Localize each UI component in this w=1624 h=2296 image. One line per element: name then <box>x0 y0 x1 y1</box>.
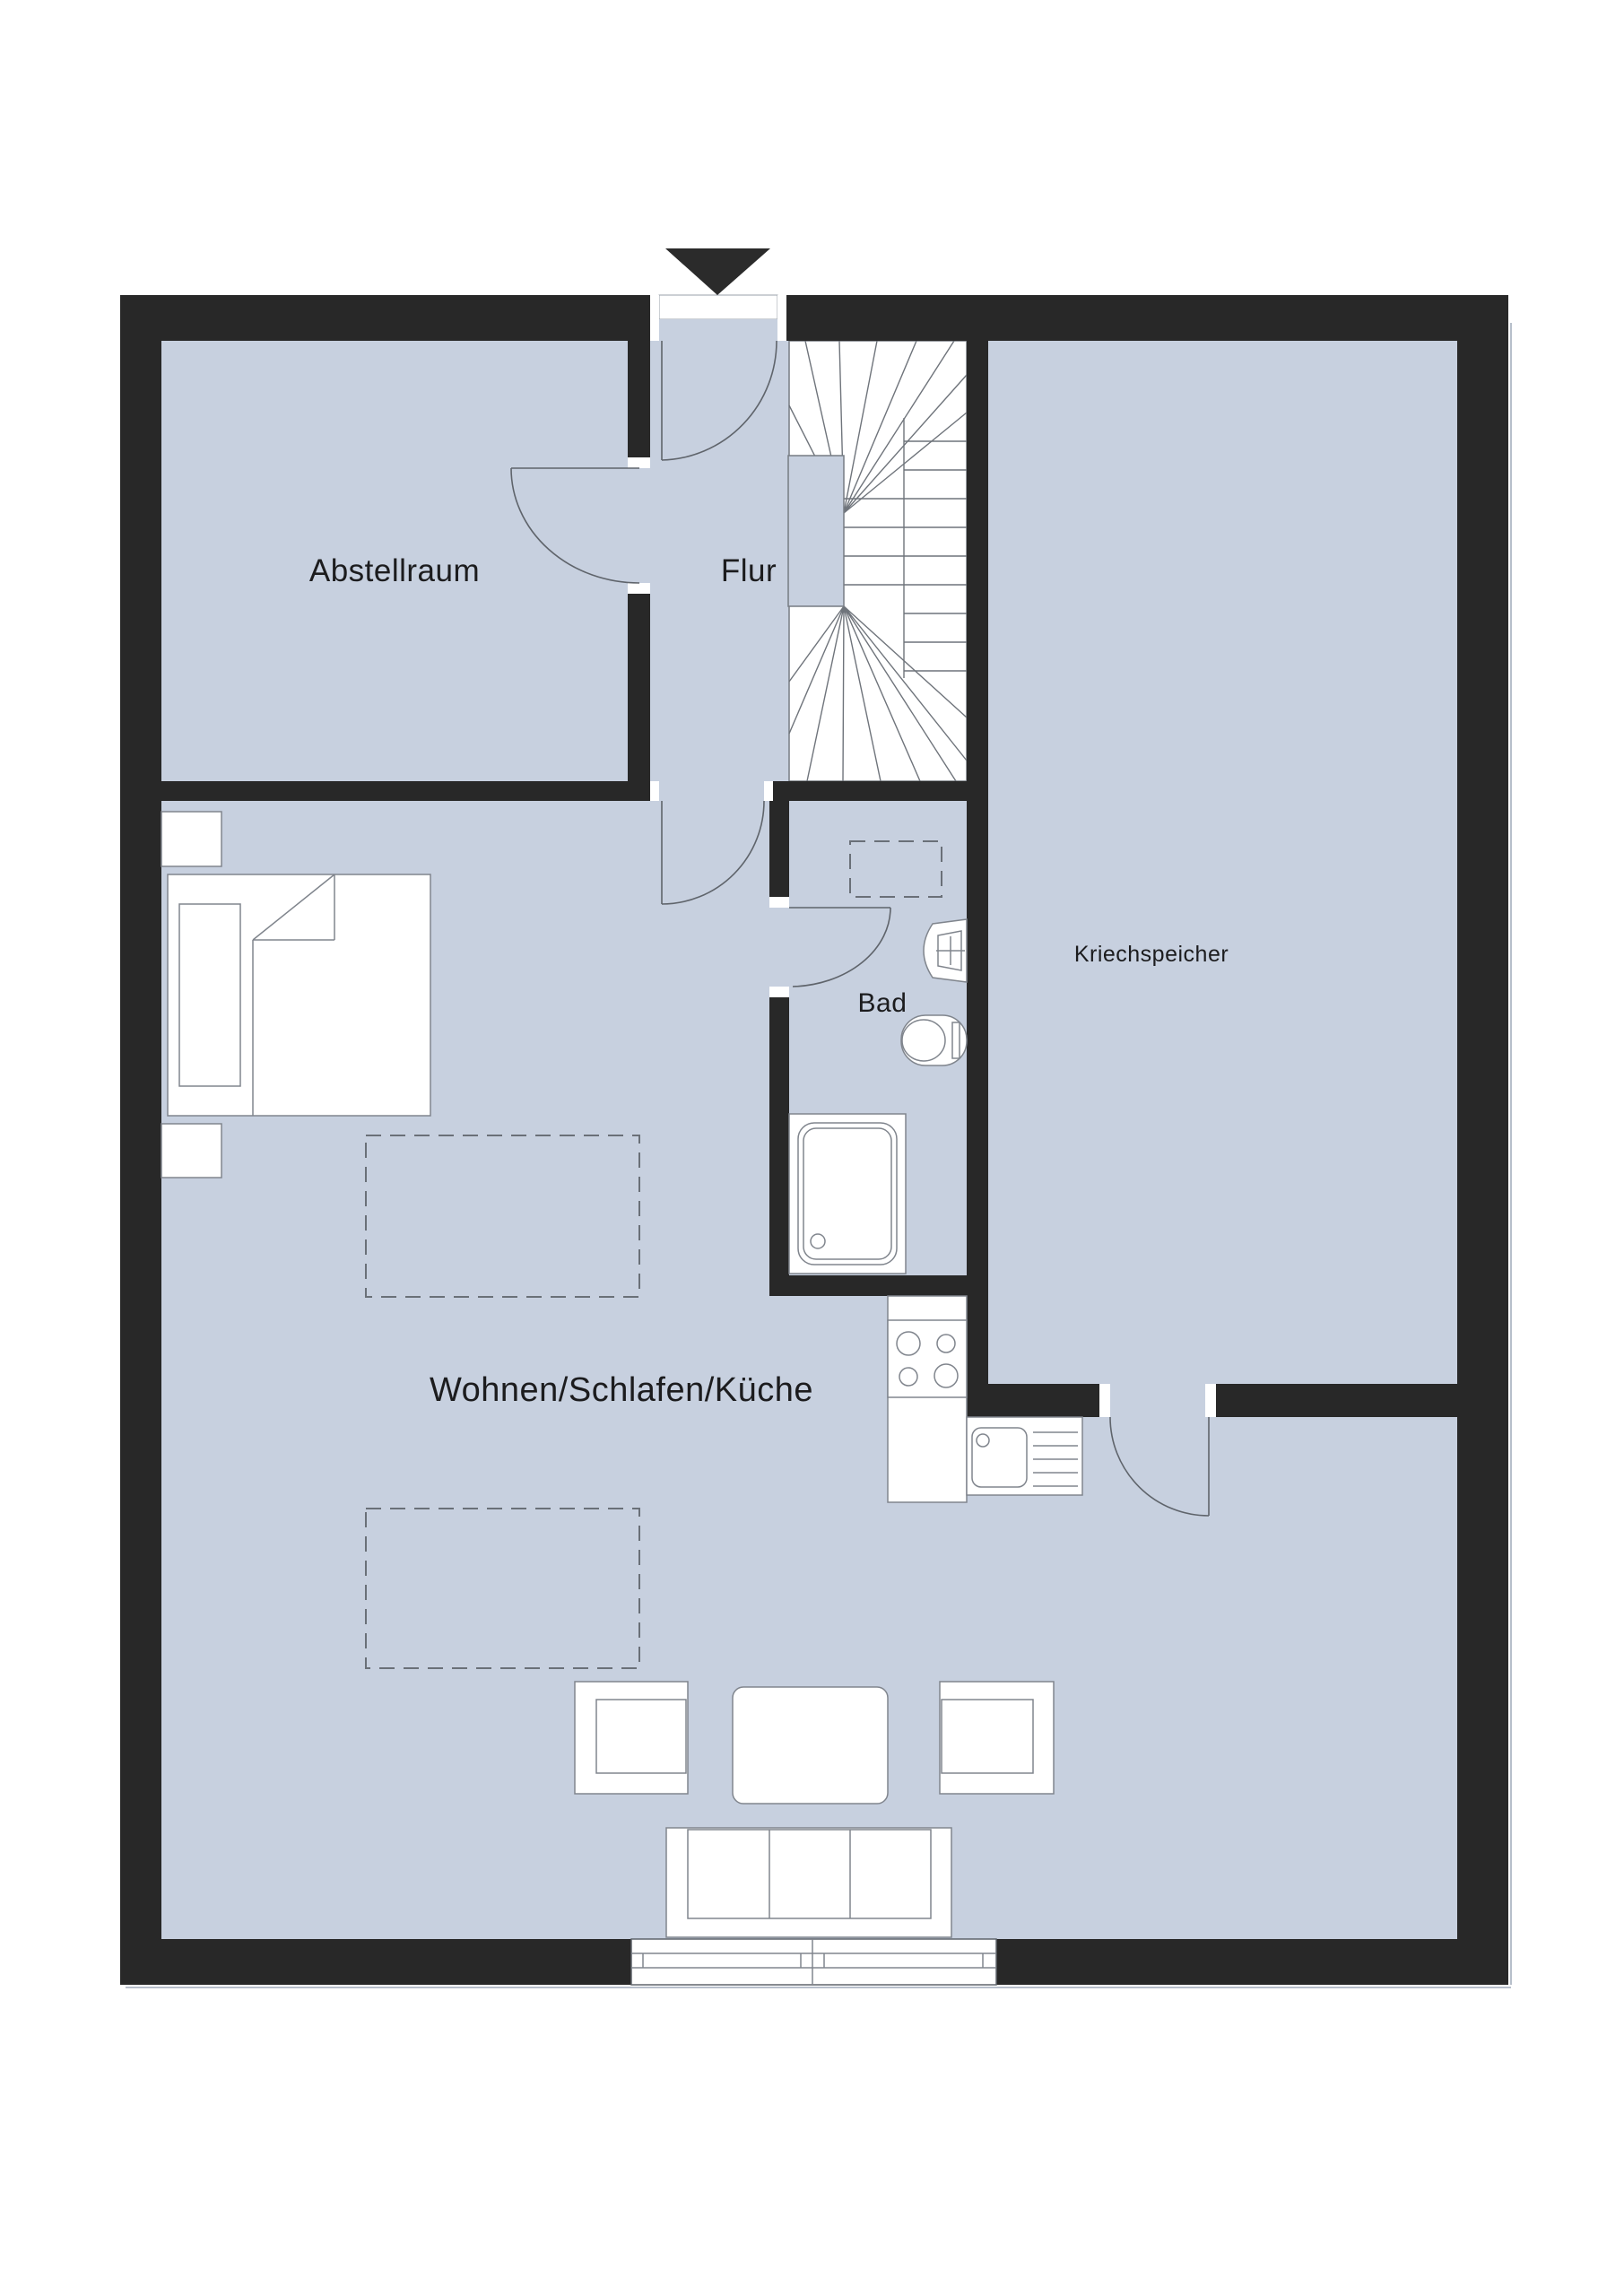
toilet <box>901 1015 967 1065</box>
entrance-arrow <box>665 248 770 295</box>
pillow <box>179 904 240 1086</box>
room-label-kriechspeicher: Kriechspeicher <box>1074 942 1229 967</box>
nightstand-upper <box>161 812 221 866</box>
entrance-jamb-left <box>650 295 659 341</box>
stairs-bottom-wall <box>773 781 988 801</box>
shower-tray <box>789 1114 906 1274</box>
coffee-table <box>733 1687 888 1804</box>
room-label-bad: Bad <box>858 988 908 1018</box>
stair-hall-notch <box>788 456 844 606</box>
armchair-left <box>575 1682 688 1794</box>
bath-left-wall-upper <box>769 801 789 897</box>
burner <box>934 1364 958 1387</box>
bath-left-wall-lower <box>769 997 789 1275</box>
left-wall <box>120 295 161 1985</box>
entrance-jamb-right <box>777 295 786 341</box>
washbasin <box>924 919 967 982</box>
double-bed <box>168 874 430 1116</box>
burner <box>897 1332 920 1355</box>
crawl-attic-left-wall <box>967 341 988 1417</box>
entrance-floor-strip <box>659 319 777 341</box>
floor-plan-page: Abstellraum Flur Kriechspeicher Bad Wohn… <box>0 0 1624 2296</box>
storage-wall-upper <box>628 341 650 457</box>
entrance-threshold <box>659 295 777 319</box>
stove <box>888 1320 967 1397</box>
room-label-flur: Flur <box>721 553 777 588</box>
sink-faucet <box>977 1434 989 1447</box>
burner <box>937 1335 955 1352</box>
storage-wall-lower <box>628 594 650 781</box>
armchair-right <box>940 1682 1054 1794</box>
sofa-three-seat <box>666 1828 951 1937</box>
crawl-attic-bottom-wall-right <box>1216 1384 1457 1417</box>
flush-button <box>952 1022 960 1058</box>
floor-plan-drawing: Abstellraum Flur Kriechspeicher Bad Wohn… <box>0 0 1624 2296</box>
burner <box>899 1368 917 1386</box>
nightstand-lower <box>161 1124 221 1178</box>
crawl-attic-bottom-wall-left <box>988 1384 1099 1417</box>
right-wall <box>1457 295 1508 1985</box>
room-label-abstellraum: Abstellraum <box>309 553 480 588</box>
top-wall-left <box>120 295 650 341</box>
shower-drain <box>811 1234 825 1248</box>
storage-bottom-wall <box>161 781 650 801</box>
kitchen-sink-unit <box>967 1417 1082 1495</box>
winder-staircase <box>788 341 967 781</box>
room-label-wohnen: Wohnen/Schlafen/Küche <box>430 1371 813 1409</box>
top-wall-right <box>786 295 1508 341</box>
bath-bottom-wall <box>769 1275 988 1296</box>
bottom-window <box>631 1939 996 1985</box>
